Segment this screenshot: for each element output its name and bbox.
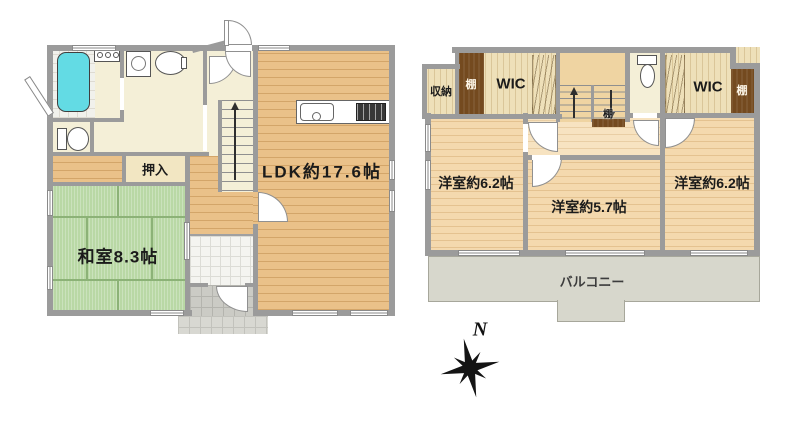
- door-opening: [226, 45, 252, 51]
- wall: [203, 45, 207, 109]
- window: [425, 124, 431, 152]
- shuno-label: 収納: [430, 83, 452, 99]
- toilet-tank: [57, 128, 67, 150]
- wall: [625, 47, 630, 122]
- window: [47, 190, 53, 216]
- door-opening: [633, 113, 657, 118]
- window: [47, 266, 53, 290]
- vanity-knob: [97, 52, 103, 58]
- tatami-line: [50, 216, 187, 218]
- wall: [422, 64, 427, 119]
- wall: [660, 113, 665, 256]
- wall: [122, 154, 126, 185]
- vanity-knob: [113, 52, 119, 58]
- toilet-bowl: [640, 64, 655, 88]
- wall: [47, 118, 124, 122]
- entrance-step: [178, 316, 268, 334]
- stairs-up-arrow: [573, 92, 575, 118]
- genkan-step-line: [190, 234, 253, 236]
- wall: [253, 224, 258, 316]
- stove: [356, 103, 386, 121]
- wall: [190, 283, 208, 287]
- bedroom-right-label: 洋室約6.2帖: [674, 173, 749, 193]
- window: [292, 310, 338, 316]
- genkan-floor: [190, 236, 253, 285]
- oshiire-label: 押入: [142, 160, 168, 179]
- tatami-line: [117, 279, 119, 312]
- shelf-right-label: 棚: [737, 82, 748, 98]
- vanity-knob: [105, 52, 111, 58]
- wic-left-label: WIC: [496, 76, 525, 93]
- washitsu-label: 和室8.3帖: [78, 243, 159, 268]
- wall: [660, 47, 665, 118]
- window: [258, 45, 290, 51]
- toilet-bowl: [67, 127, 89, 151]
- wall: [389, 45, 395, 316]
- window: [565, 250, 645, 256]
- stairs-divider-wall: [591, 85, 594, 122]
- wall: [47, 182, 190, 186]
- tatami-line: [50, 279, 187, 281]
- door-opening: [532, 155, 560, 160]
- wall: [422, 114, 562, 119]
- door-opening: [120, 78, 124, 110]
- stairs-up-arrow-head: [231, 102, 239, 110]
- washing-machine-drum: [131, 56, 146, 71]
- floor-plan: 押入 和室8.3帖 LDK約17.6帖: [0, 0, 800, 424]
- wall: [556, 53, 560, 122]
- window: [72, 45, 116, 51]
- kitchen-faucet: [312, 112, 321, 121]
- sliding-door: [184, 222, 190, 260]
- tatami-line: [117, 185, 119, 217]
- shelf-stairs-label: 棚: [603, 106, 613, 121]
- hanger-rod: [665, 55, 685, 115]
- door-opening: [523, 124, 528, 152]
- stairs-first-floor: [220, 100, 253, 192]
- wood-strip-floor: [50, 154, 122, 185]
- window: [150, 310, 184, 316]
- wall: [253, 45, 258, 192]
- wic-right-label: WIC: [693, 79, 722, 96]
- wall: [218, 100, 222, 192]
- window: [389, 190, 395, 212]
- shelf-left-label: 棚: [466, 76, 477, 92]
- balcony-seam: [558, 300, 624, 303]
- door-opening: [203, 105, 207, 151]
- ldk-label: LDK約17.6帖: [262, 158, 382, 183]
- balcony-notch: [557, 300, 625, 322]
- stairs-up-arrow-head: [570, 87, 578, 95]
- wall: [452, 47, 736, 53]
- window: [425, 160, 431, 190]
- wall: [754, 63, 760, 256]
- wall: [455, 53, 459, 119]
- bedroom-middle-label: 洋室約5.7帖: [551, 197, 626, 217]
- bathtub: [57, 52, 90, 112]
- window: [350, 310, 388, 316]
- back-door-swing: [228, 20, 252, 45]
- washbasin-tap: [181, 57, 187, 69]
- window: [458, 250, 520, 256]
- hanger-rod: [532, 55, 556, 115]
- wall: [90, 118, 94, 156]
- window: [690, 250, 748, 256]
- window: [389, 160, 395, 180]
- stairs-up-arrow: [234, 108, 236, 180]
- compass-rose-icon: [431, 332, 508, 404]
- balcony-label: バルコニー: [560, 272, 625, 291]
- bedroom-left-label: 洋室約6.2帖: [438, 173, 513, 193]
